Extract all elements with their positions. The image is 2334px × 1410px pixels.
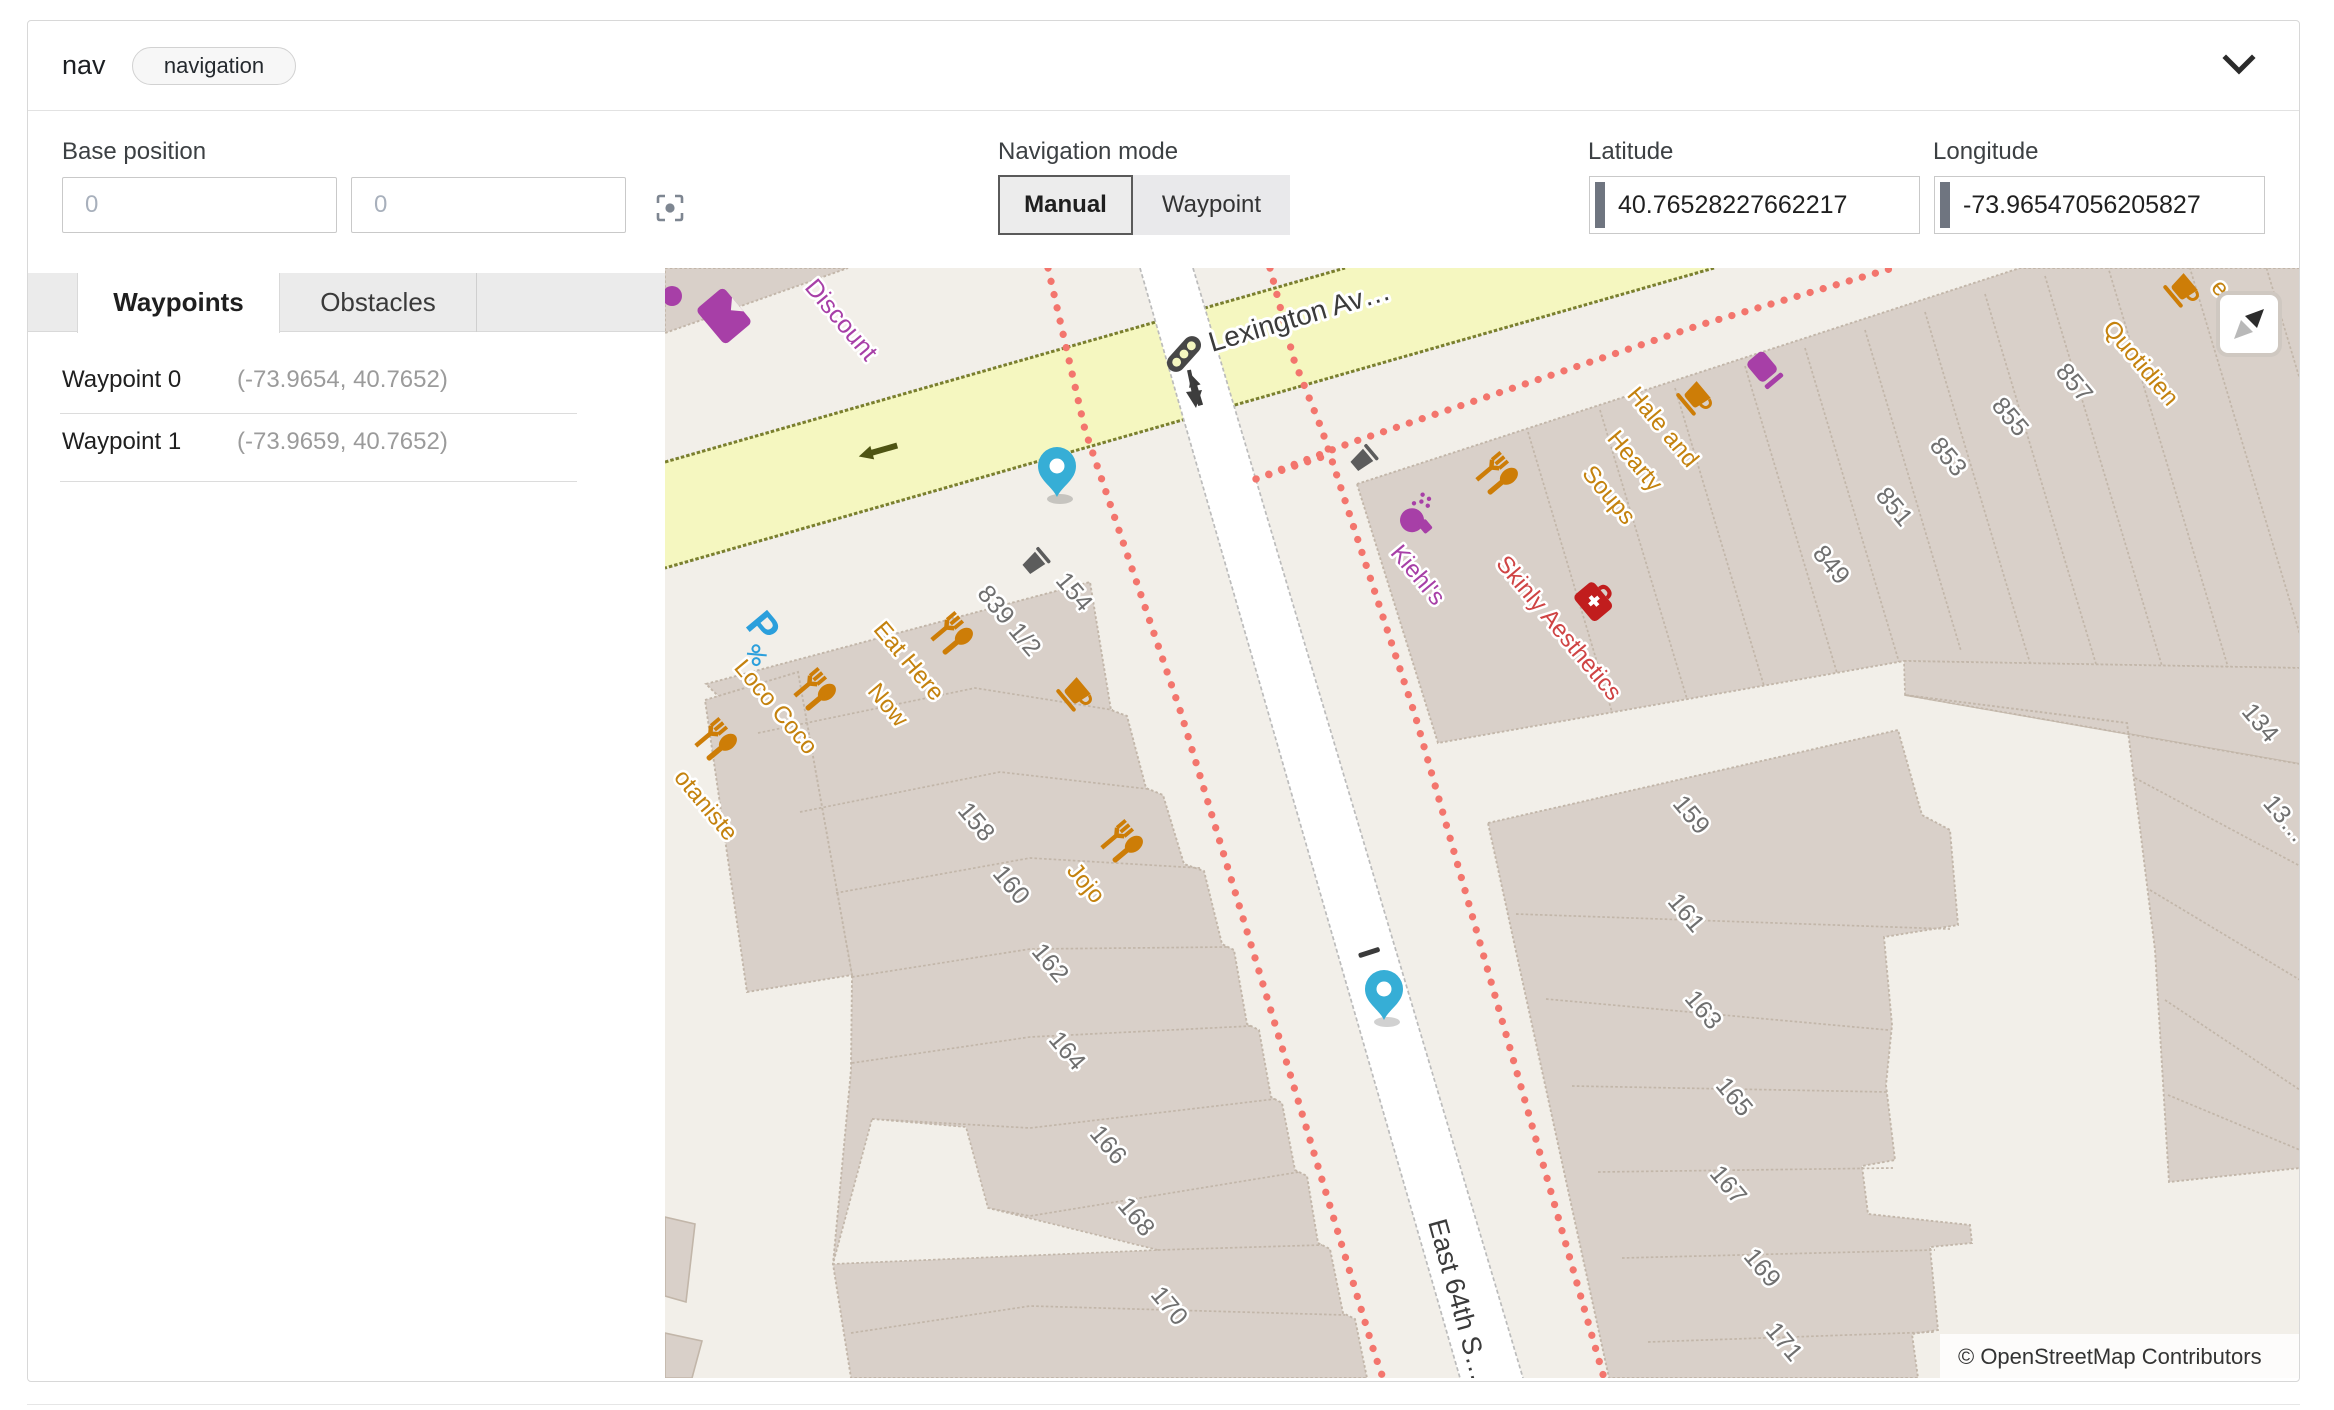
svg-text:© OpenStreetMap Contributors: © OpenStreetMap Contributors	[1958, 1344, 2262, 1369]
